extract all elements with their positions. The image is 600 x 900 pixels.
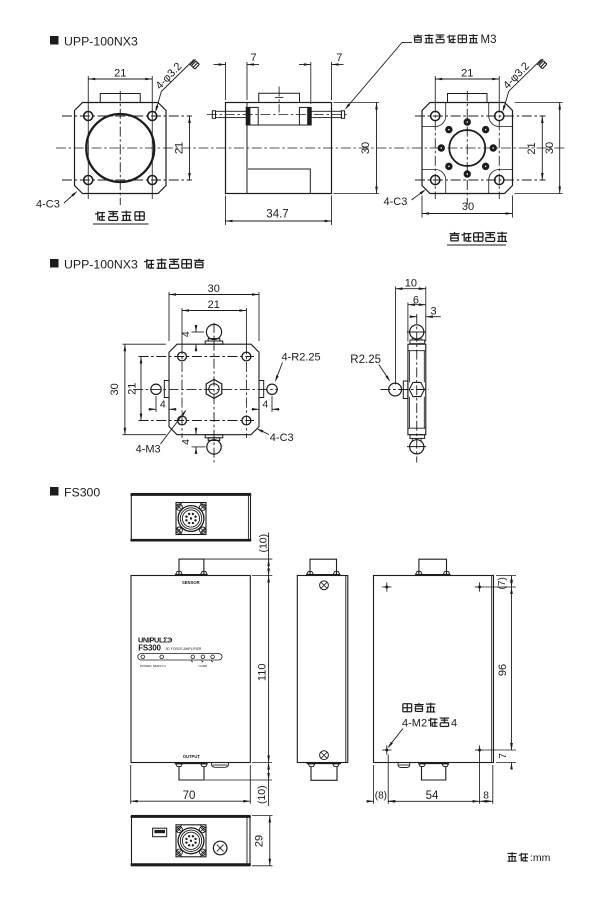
svg-text:21: 21 [173,142,185,154]
svg-text:30: 30 [360,142,372,154]
svg-text:70: 70 [183,790,196,802]
svg-text:4-M3: 4-M3 [136,444,161,456]
svg-text:96: 96 [497,664,509,676]
svg-text:7: 7 [336,52,342,64]
svg-text:4-C3: 4-C3 [270,432,294,444]
svg-text:4: 4 [180,331,192,337]
svg-text:30: 30 [208,283,220,295]
svg-text:30: 30 [462,201,474,213]
svg-text:21: 21 [208,299,220,311]
svg-text:FS300: FS300 [138,643,161,652]
svg-text:FS300: FS300 [64,486,100,500]
svg-text:4-C3: 4-C3 [36,199,60,211]
svg-text:6: 6 [413,294,419,306]
svg-text:10: 10 [405,277,417,289]
svg-text:OVER: OVER [199,664,209,668]
svg-text:SENSYN: SENSYN [153,664,166,668]
svg-text:34.7: 34.7 [266,209,288,221]
svg-text:21: 21 [126,383,138,395]
svg-text:(7): (7) [497,577,508,589]
svg-text:21: 21 [461,68,473,80]
svg-text:OUTPUT: OUTPUT [183,754,201,759]
svg-text:3D FORCE AMPLIFIER: 3D FORCE AMPLIFIER [166,647,202,651]
svg-text:30: 30 [109,383,121,395]
svg-text:UPP-100NX3: UPP-100NX3 [64,35,138,49]
svg-text:R2.25: R2.25 [350,354,381,366]
svg-text:21: 21 [526,142,538,154]
svg-text:3: 3 [431,305,437,317]
svg-text:4: 4 [160,399,166,411]
svg-text:7: 7 [497,753,509,759]
svg-text:110: 110 [257,664,269,682]
svg-text:4: 4 [180,439,192,445]
svg-text:M3: M3 [481,34,497,46]
svg-text:4-R2.25: 4-R2.25 [282,352,321,364]
svg-text:29: 29 [254,835,266,847]
svg-text:SENSOR: SENSOR [182,580,200,585]
svg-text:4-M2: 4-M2 [402,718,427,730]
svg-text:4: 4 [451,718,457,730]
svg-text:21: 21 [114,68,126,80]
svg-text:(10): (10) [258,534,270,553]
svg-text::mm: :mm [530,852,551,864]
svg-text:8: 8 [483,789,489,801]
svg-text:UPP-100NX3: UPP-100NX3 [64,258,138,272]
svg-text:4-C3: 4-C3 [384,196,408,208]
svg-text:(8): (8) [375,790,387,801]
svg-text:7: 7 [251,52,257,64]
svg-text:(10): (10) [256,785,268,804]
svg-text:30: 30 [544,142,556,154]
svg-text:4: 4 [262,399,268,411]
svg-text:POWER: POWER [140,664,152,668]
svg-text:54: 54 [426,790,439,802]
